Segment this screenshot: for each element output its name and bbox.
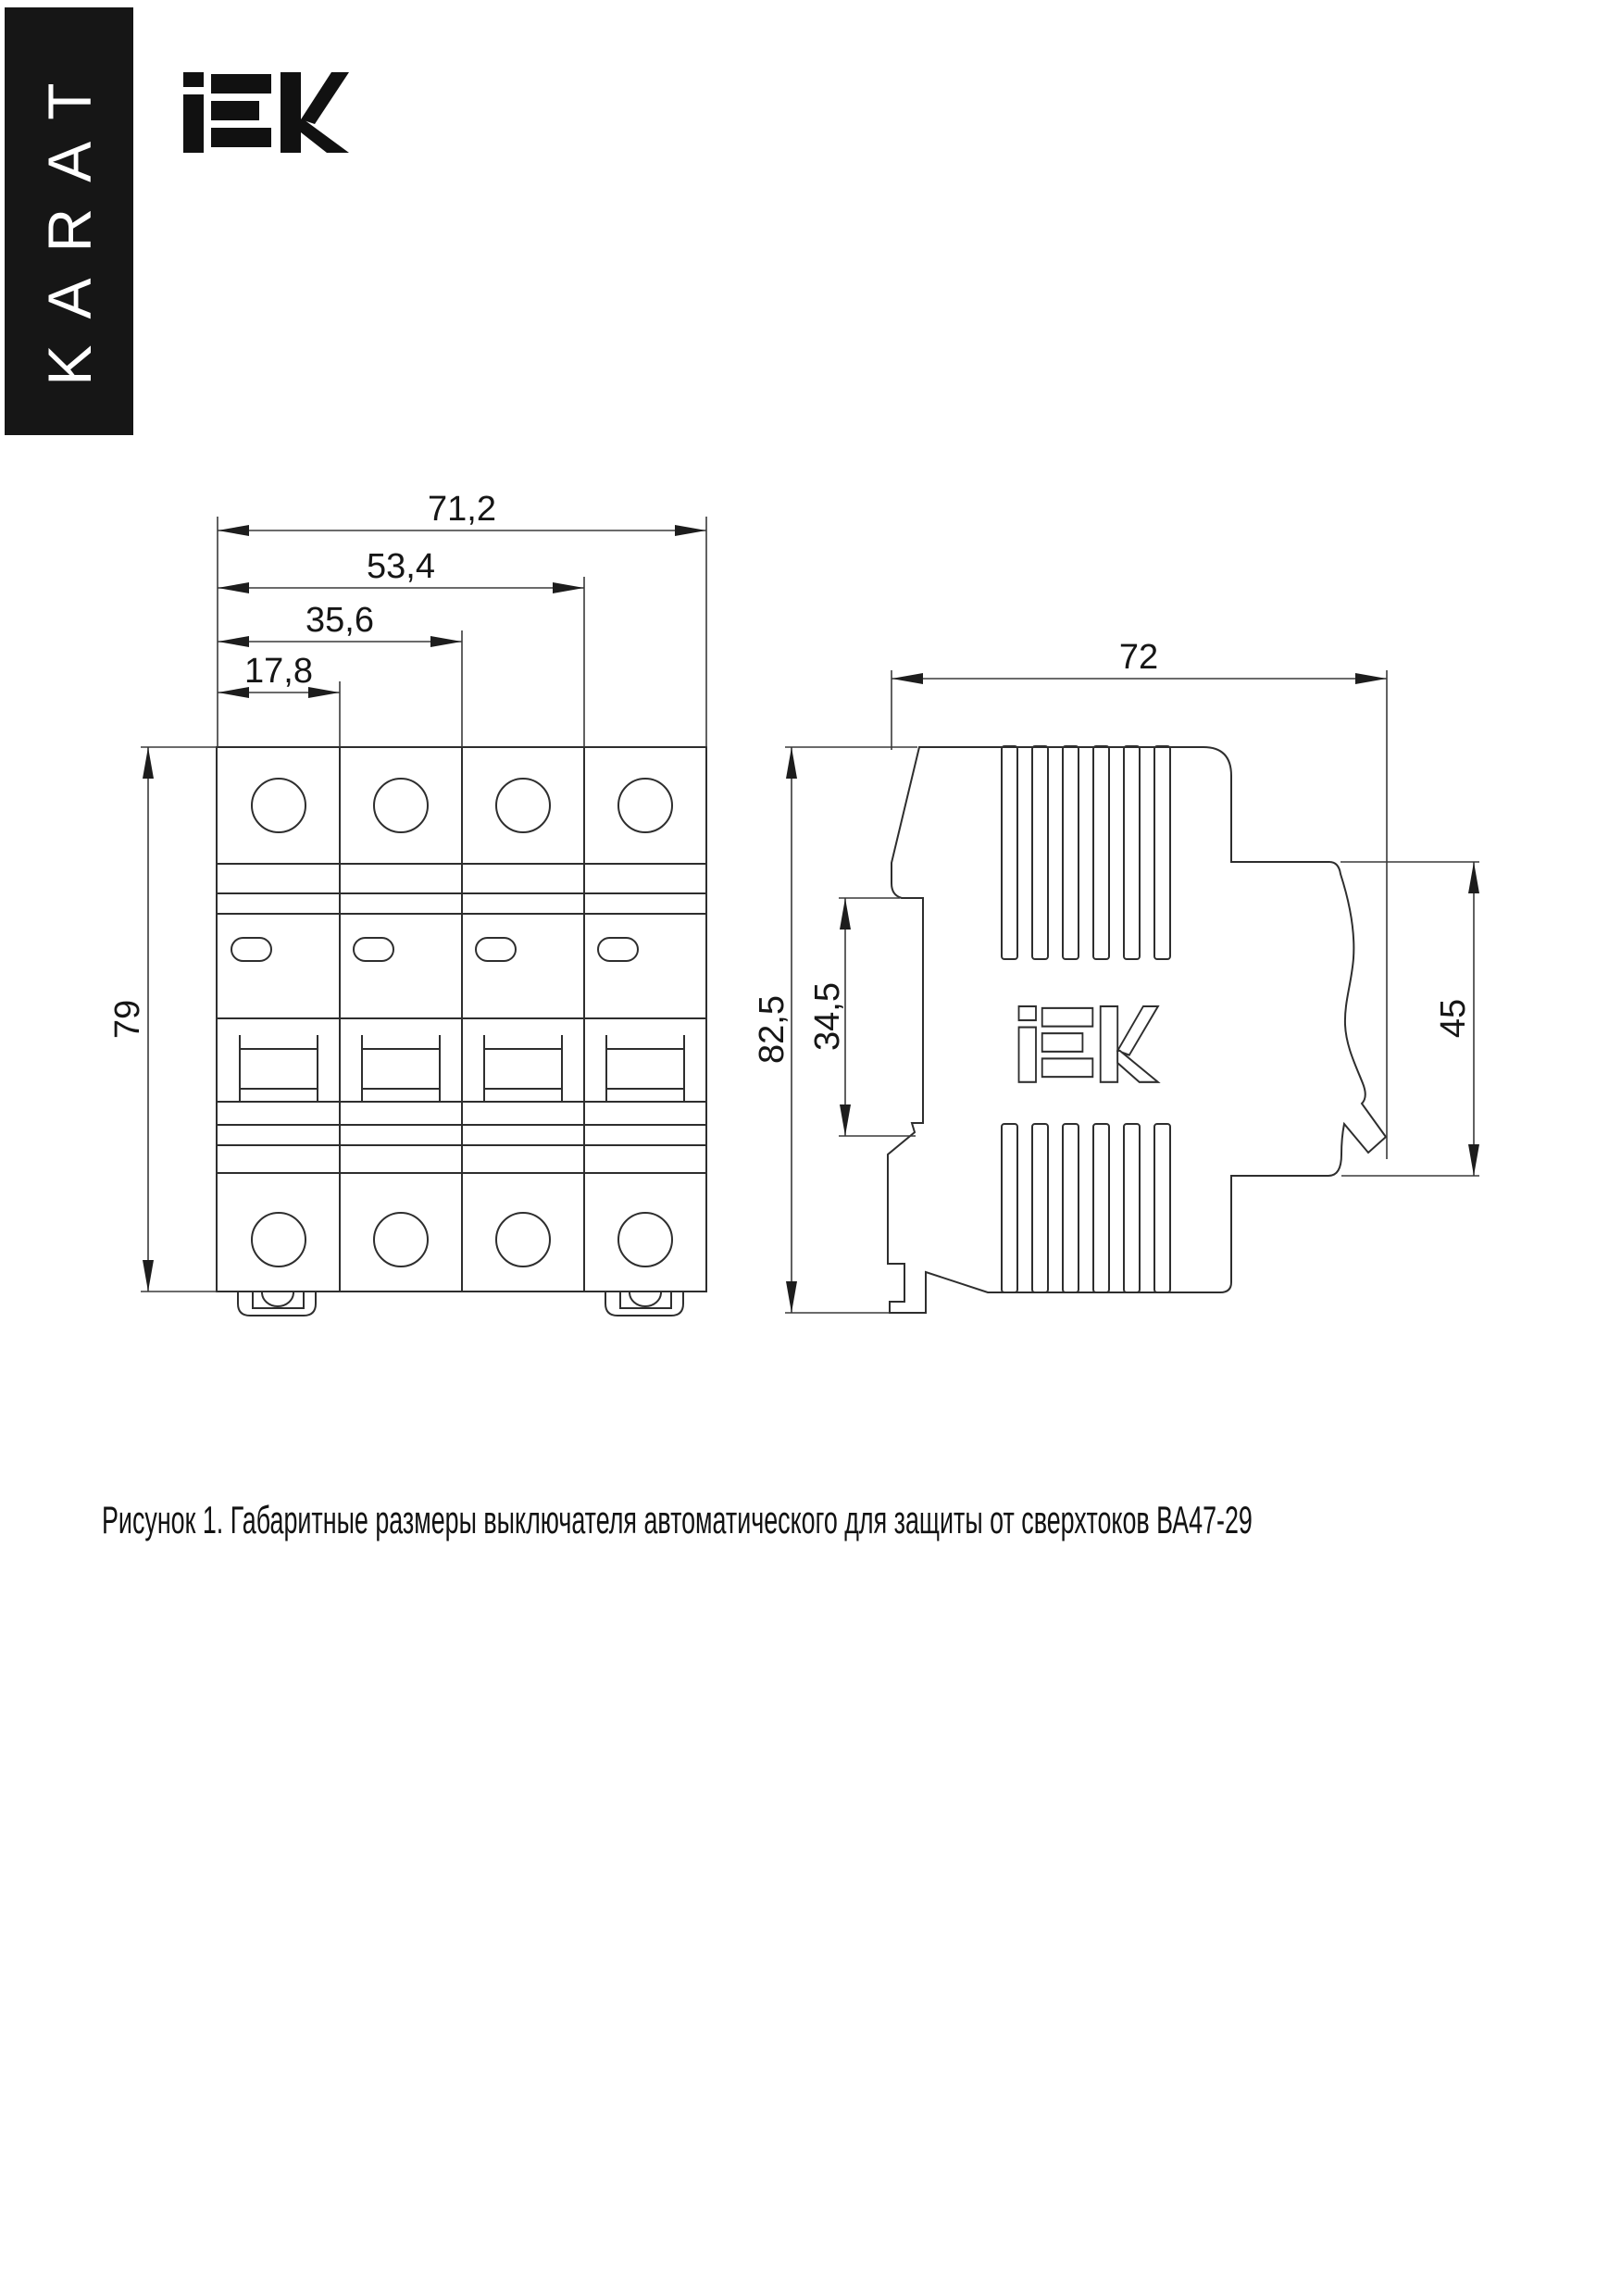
dim-label-34-5: 34,5 — [808, 982, 847, 1051]
dim-three-modules: 53,4 — [218, 547, 584, 593]
vent-slots-upper — [1002, 746, 1170, 959]
toggle-handle — [362, 1035, 440, 1102]
dim-total-width: 71,2 — [218, 490, 706, 536]
din-clip-tab — [605, 1291, 683, 1316]
dim-one-module: 17,8 — [218, 652, 340, 698]
dimensions: 71,2 53,4 35,6 17,8 — [108, 490, 1479, 1313]
label-window — [354, 938, 393, 961]
label-window — [476, 938, 516, 961]
figure-caption-text: Рисунок 1. Габаритные размеры выключател… — [102, 1498, 1253, 1542]
label-window — [598, 938, 638, 961]
iek-embossed-logo — [1019, 1006, 1158, 1082]
terminal-screw — [496, 779, 550, 832]
terminal-screw — [496, 1213, 550, 1267]
side-view — [888, 746, 1386, 1313]
terminal-screw — [252, 1213, 305, 1267]
dim-side-total-height: 82,5 — [753, 747, 797, 1313]
toggle-handle — [484, 1035, 562, 1102]
dim-label-82-5: 82,5 — [753, 995, 792, 1064]
terminal-screw — [374, 779, 428, 832]
vent-slots-lower — [1002, 1124, 1170, 1292]
toggle-handle — [240, 1035, 318, 1102]
terminal-screw — [618, 1213, 672, 1267]
din-clip-tab — [238, 1291, 316, 1316]
datasheet-page: KARAT — [0, 0, 1621, 2296]
terminal-screw — [618, 779, 672, 832]
dim-front-height: 79 — [108, 747, 154, 1291]
dim-din-recess: 34,5 — [808, 898, 851, 1136]
dimensional-drawing: 71,2 53,4 35,6 17,8 — [0, 0, 1621, 1620]
dim-label-45: 45 — [1434, 999, 1473, 1038]
dim-front-part-height: 45 — [1434, 862, 1479, 1176]
dim-label-72: 72 — [1119, 638, 1158, 677]
front-view — [217, 747, 706, 1316]
toggle-handle — [606, 1035, 684, 1102]
dim-label-53-4: 53,4 — [367, 547, 435, 586]
dim-two-modules: 35,6 — [218, 601, 462, 647]
label-window — [231, 938, 271, 961]
dim-label-35-6: 35,6 — [305, 601, 374, 640]
dim-depth: 72 — [892, 638, 1387, 684]
terminal-screw — [374, 1213, 428, 1267]
dim-label-79: 79 — [108, 1000, 147, 1039]
iek-logo — [183, 72, 349, 153]
dim-label-71-2: 71,2 — [428, 490, 496, 529]
terminal-screw — [252, 779, 305, 832]
figure-caption: Рисунок 1. Габаритные размеры выключател… — [102, 1498, 1621, 1542]
dim-label-17-8: 17,8 — [244, 652, 313, 691]
